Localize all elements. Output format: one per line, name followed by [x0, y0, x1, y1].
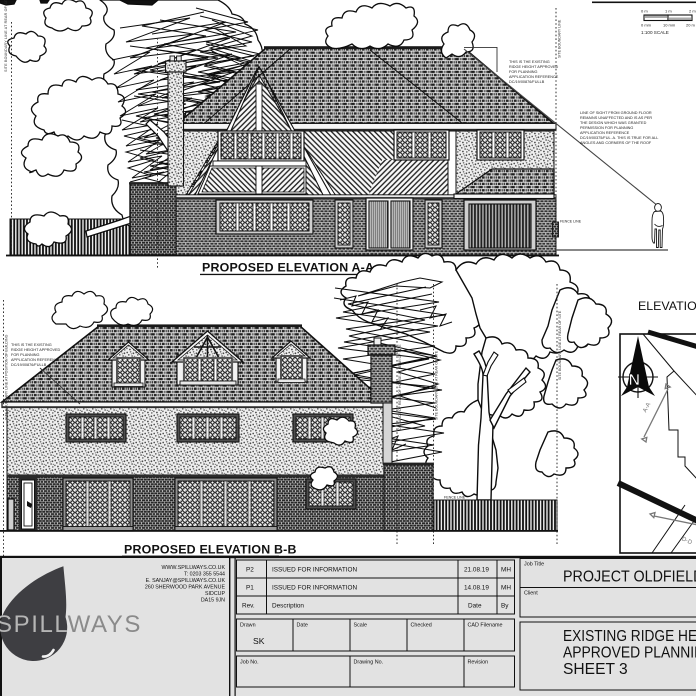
svg-text:FENCE LINE: FENCE LINE	[444, 496, 466, 500]
svg-text:WWW.SPILLWAYS.CO.UK: WWW.SPILLWAYS.CO.UK	[162, 565, 226, 571]
svg-text:260 SHERWOOD PARK AVENUE: 260 SHERWOOD PARK AVENUE	[145, 585, 226, 591]
svg-text:SITE BOUNDARY LINE AT REAR OF: SITE BOUNDARY LINE AT REAR OF SITE	[4, 0, 8, 72]
svg-text:SITE BOUNDARY LINE: SITE BOUNDARY LINE	[558, 19, 562, 58]
svg-text:14.08.19: 14.08.19	[464, 585, 489, 592]
svg-text:MH: MH	[501, 567, 511, 574]
svg-text:1 m: 1 m	[665, 9, 672, 14]
svg-text:FENCE LINE: FENCE LINE	[560, 220, 582, 224]
svg-text:MH: MH	[501, 585, 511, 592]
svg-text:APPROVED PLANNING: APPROVED PLANNING	[563, 645, 696, 662]
svg-text:P2: P2	[246, 567, 254, 574]
svg-text:APPLICATION REFERENCE: APPLICATION REFERENCE	[580, 131, 630, 135]
svg-text:PROPOSED ELEVATION B-B: PROPOSED ELEVATION B-B	[124, 543, 297, 557]
svg-text:10 mm: 10 mm	[663, 23, 676, 28]
svg-text:SHEET 3: SHEET 3	[563, 661, 628, 678]
svg-text:SIDCUP: SIDCUP	[205, 591, 225, 597]
svg-text:N: N	[629, 372, 641, 389]
svg-text:Drawing No.: Drawing No.	[354, 660, 384, 666]
svg-text:THIS IS THE EXISTING: THIS IS THE EXISTING	[11, 343, 52, 347]
svg-text:Drawn: Drawn	[240, 623, 256, 629]
svg-text:SITE BOUNDARY LINE AT REAR OF: SITE BOUNDARY LINE AT REAR OF SITE	[435, 350, 439, 420]
svg-text:1:100 SCALE: 1:100 SCALE	[641, 30, 669, 35]
svg-text:0 mm: 0 mm	[641, 23, 652, 28]
svg-text:PERMISSION FOR PLANNING: PERMISSION FOR PLANNING	[580, 126, 633, 130]
svg-text:Client: Client	[524, 591, 538, 597]
svg-text:SPILLWAYS: SPILLWAYS	[0, 611, 142, 638]
svg-text:Job Title: Job Title	[524, 562, 544, 568]
svg-text:RIDGE HEIGHT APPROVED: RIDGE HEIGHT APPROVED	[11, 348, 61, 352]
svg-text:Rev.: Rev.	[242, 603, 255, 610]
svg-text:THIS IS THE EXISTING: THIS IS THE EXISTING	[509, 60, 550, 64]
svg-text:REMAINS UNAFFECTED AND IS AS P: REMAINS UNAFFECTED AND IS AS PER	[580, 116, 652, 120]
svg-text:ISSUED FOR INFORMATION: ISSUED FOR INFORMATION	[272, 567, 357, 574]
svg-text:ISSUED FOR INFORMATION: ISSUED FOR INFORMATION	[272, 585, 357, 592]
svg-text:Scale: Scale	[354, 623, 368, 629]
svg-text:Checked: Checked	[411, 623, 432, 629]
svg-text:T: 0203 355 5544: T: 0203 355 5544	[184, 572, 225, 578]
svg-text:SITE BOUNDARY LINE AT POSITION: SITE BOUNDARY LINE AT POSITION OF BUILDI…	[5, 334, 9, 420]
svg-text:APPLICATION REFERENCE: APPLICATION REFERENCE	[509, 75, 559, 79]
svg-text:DISTANCE OF REAR OF HOUSE AT R: DISTANCE OF REAR OF HOUSE AT REAR OF SIT…	[398, 344, 402, 430]
svg-text:21.08.19: 21.08.19	[464, 567, 489, 574]
svg-text:ELEVATION: ELEVATION	[638, 299, 696, 313]
svg-text:PROJECT OLDFIELDS: PROJECT OLDFIELDS	[563, 569, 696, 586]
svg-text:Revision: Revision	[468, 660, 489, 666]
svg-text:ANGLES AND CORNERS OF THE ROOF: ANGLES AND CORNERS OF THE ROOF	[580, 141, 652, 145]
svg-text:DC/19/00876/FULLB: DC/19/00876/FULLB	[509, 80, 545, 84]
svg-text:FOR PLANNING: FOR PLANNING	[509, 70, 538, 74]
svg-text:Date: Date	[468, 603, 482, 610]
svg-text:P1: P1	[246, 585, 254, 592]
svg-text:PROPOSED ELEVATION A-A: PROPOSED ELEVATION A-A	[202, 261, 374, 275]
svg-text:LINE OF SIGHT FROM GROUND FLOO: LINE OF SIGHT FROM GROUND FLOOR	[580, 111, 652, 115]
svg-text:RIDGE HEIGHT APPROVED: RIDGE HEIGHT APPROVED	[509, 65, 559, 69]
svg-text:DC/19/00375/FUL. A. THIS IS TR: DC/19/00375/FUL. A. THIS IS TRUE FOR ALL	[580, 136, 658, 140]
svg-text:EXISTING RIDGE HEIGHTS: EXISTING RIDGE HEIGHTS	[563, 628, 696, 645]
svg-text:SITE BOUNDARY LINE AT REAR OF: SITE BOUNDARY LINE AT REAR OF SITE	[558, 310, 562, 380]
svg-text:0 m: 0 m	[641, 9, 648, 14]
svg-text:SK: SK	[253, 636, 265, 646]
svg-text:APPLICATION REFERENCE: APPLICATION REFERENCE	[11, 358, 61, 362]
svg-text:DA15 9JN: DA15 9JN	[201, 598, 225, 604]
svg-text:CAD Filename: CAD Filename	[468, 623, 503, 629]
svg-text:2 m: 2 m	[689, 9, 696, 14]
svg-text:E. SANJAY@SPILLWAYS.CO.UK: E. SANJAY@SPILLWAYS.CO.UK	[146, 578, 226, 584]
svg-text:FOR PLANNING: FOR PLANNING	[11, 353, 40, 357]
svg-text:Job No.: Job No.	[240, 660, 259, 666]
svg-text:THE DESIGN WHICH WAS GRANTED: THE DESIGN WHICH WAS GRANTED	[580, 121, 647, 125]
svg-text:20 m: 20 m	[686, 23, 696, 28]
svg-text:Description: Description	[272, 603, 304, 610]
svg-text:DC/19/00876/FULLB: DC/19/00876/FULLB	[11, 363, 47, 367]
svg-text:Date: Date	[297, 623, 308, 629]
svg-text:By: By	[501, 603, 509, 610]
